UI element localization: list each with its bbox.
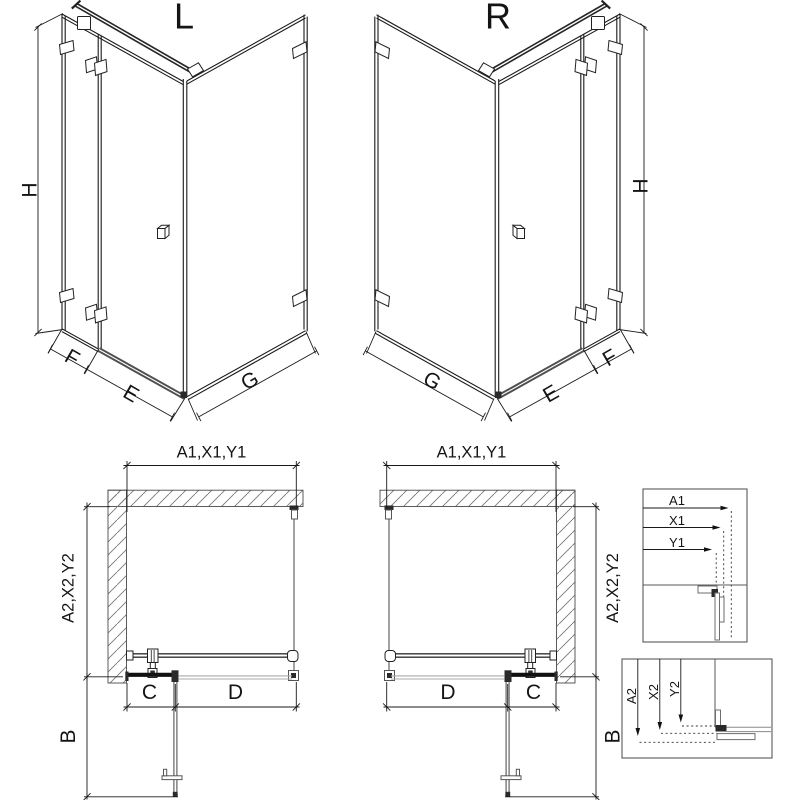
plan-view-left: A1,X1,Y1 A2,X2,Y2 C D B	[57, 444, 303, 800]
plan-left-dim-c: C	[142, 681, 157, 704]
iso-view-right: R H F E G	[363, 0, 652, 422]
plan-right-dim-c: C	[526, 681, 541, 704]
detail-box-width: A1 X1 Y1	[643, 489, 747, 642]
detail-depth-frame	[622, 659, 772, 758]
shower-enclosure-technical-drawing: L H F E G R H F E G A1,X1,Y1 A2,X2,Y2 C …	[0, 0, 800, 800]
profile-bracket	[716, 710, 721, 727]
iso-right-dim-door: E	[539, 381, 563, 408]
plan-left-wall-top	[108, 490, 303, 506]
plan-right-dim-d: D	[440, 681, 455, 704]
plan-right-dim-b: B	[602, 729, 625, 743]
iso-left-dim-panel: F	[61, 345, 84, 371]
detail-depth-row-x2: X2	[646, 684, 661, 700]
plan-right-wall-top	[380, 490, 575, 506]
plan-left-dim-d: D	[228, 681, 243, 704]
plan-right-wall-side	[557, 490, 576, 683]
detail-width-row-x1: X1	[669, 513, 685, 528]
plan-left-wall-side	[108, 490, 127, 683]
iso-left-dim-height: H	[19, 182, 42, 197]
plan-right-dim-width: A1,X1,Y1	[437, 444, 507, 462]
drawing-canvas: L H F E G R H F E G A1,X1,Y1 A2,X2,Y2 C …	[0, 0, 800, 800]
detail-depth-row-a2: A2	[624, 688, 639, 704]
profile-glass	[715, 593, 720, 640]
plan-view-right: A1,X1,Y1 A2,X2,Y2 D C B	[380, 444, 625, 800]
detail-box-depth: A2 X2 Y2	[622, 659, 772, 758]
iso-right-dim-return: G	[419, 367, 445, 395]
detail-width-row-y1: Y1	[669, 535, 685, 550]
iso-view-left: L H F E G	[19, 0, 319, 422]
plan-right-dim-depth: A2,X2,Y2	[604, 553, 622, 623]
iso-left-dim-door: E	[119, 381, 143, 408]
iso-right-dim-panel: F	[599, 345, 622, 371]
iso-right-dim-height: H	[630, 178, 653, 193]
plan-left-dim-b: B	[57, 729, 80, 743]
iso-right-label: R	[485, 0, 511, 37]
detail-depth-row-y2: Y2	[667, 681, 682, 697]
detail-width-row-a1: A1	[669, 493, 685, 508]
plan-left-dim-depth: A2,X2,Y2	[60, 553, 78, 623]
iso-left-label: L	[174, 0, 194, 37]
plan-left-dim-width: A1,X1,Y1	[177, 444, 247, 462]
iso-left-dim-return: G	[237, 367, 263, 395]
